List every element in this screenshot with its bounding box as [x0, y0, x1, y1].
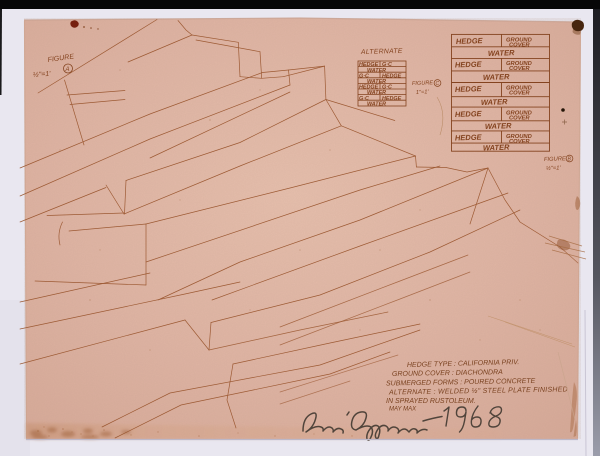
svg-text:COVER: COVER [509, 115, 530, 121]
svg-text:WATER: WATER [488, 48, 515, 58]
svg-text:COVER: COVER [509, 66, 530, 72]
svg-text:WATER: WATER [481, 97, 508, 107]
svg-text:COVER: COVER [509, 90, 530, 96]
svg-text:IN SPRAYED RUSTOLEUM.: IN SPRAYED RUSTOLEUM. [386, 398, 476, 405]
svg-text:FIGURE: FIGURE [544, 156, 566, 163]
svg-text:WATER: WATER [483, 72, 510, 82]
svg-text:HEDGE: HEDGE [455, 133, 483, 143]
svg-text:HEDGE: HEDGE [455, 84, 483, 94]
svg-text:WATER: WATER [485, 121, 512, 131]
svg-text:C: C [436, 81, 440, 87]
svg-text:WATER: WATER [367, 101, 386, 107]
svg-text:½"=1': ½"=1' [33, 70, 52, 79]
svg-text:HEDGE: HEDGE [456, 36, 484, 46]
svg-text:FIGURE: FIGURE [412, 80, 434, 87]
svg-text:HEDGE: HEDGE [455, 109, 483, 119]
svg-text:½"=1': ½"=1' [546, 164, 562, 172]
svg-text:MAY MAX: MAY MAX [389, 407, 417, 413]
svg-text:1"=1': 1"=1' [416, 89, 430, 96]
svg-text:ALTERNATE: ALTERNATE [360, 48, 403, 56]
svg-text:COVER: COVER [509, 139, 530, 145]
svg-text:A: A [65, 67, 70, 73]
svg-text:WATER: WATER [483, 143, 510, 153]
svg-text:HEDGE: HEDGE [455, 60, 483, 70]
